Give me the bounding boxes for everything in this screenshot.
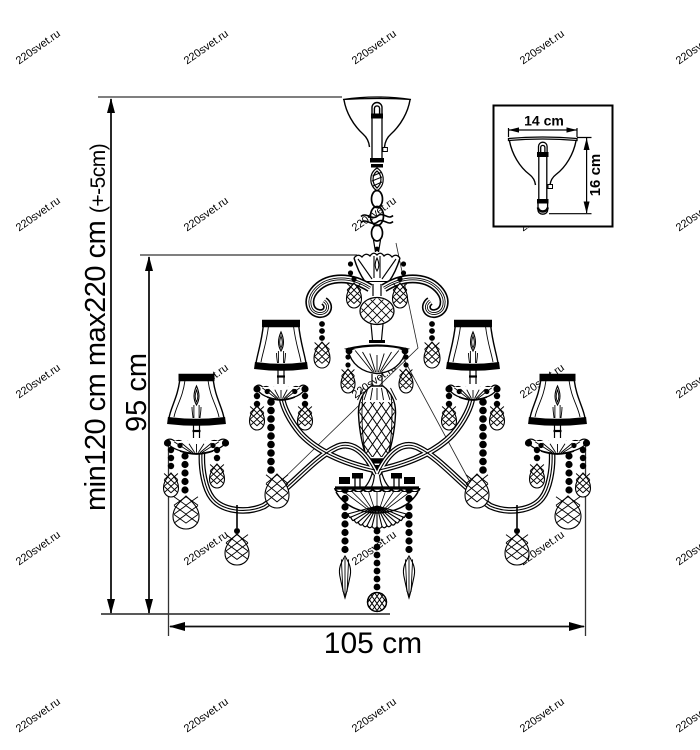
svg-text:220svet.ru: 220svet.ru — [350, 195, 399, 234]
svg-text:220svet.ru: 220svet.ru — [518, 696, 567, 735]
svg-text:220svet.ru: 220svet.ru — [182, 696, 231, 735]
svg-text:220svet.ru: 220svet.ru — [350, 28, 399, 67]
svg-text:220svet.ru: 220svet.ru — [14, 28, 63, 67]
svg-text:220svet.ru: 220svet.ru — [182, 195, 231, 234]
svg-text:220svet.ru: 220svet.ru — [182, 529, 231, 568]
svg-text:220svet.ru: 220svet.ru — [674, 696, 700, 735]
svg-text:min120 cm max220 cm (+-5cm): min120 cm max220 cm (+-5cm) — [80, 144, 112, 511]
svg-text:220svet.ru: 220svet.ru — [14, 362, 63, 401]
svg-text:14 cm: 14 cm — [524, 113, 564, 129]
svg-text:220svet.ru: 220svet.ru — [674, 362, 700, 401]
svg-text:220svet.ru: 220svet.ru — [350, 696, 399, 735]
svg-text:220svet.ru: 220svet.ru — [14, 696, 63, 735]
svg-text:220svet.ru: 220svet.ru — [674, 28, 700, 67]
svg-text:105 cm: 105 cm — [324, 627, 422, 660]
svg-text:220svet.ru: 220svet.ru — [14, 529, 63, 568]
svg-text:220svet.ru: 220svet.ru — [518, 28, 567, 67]
svg-text:220svet.ru: 220svet.ru — [674, 529, 700, 568]
svg-text:16 cm: 16 cm — [587, 154, 604, 197]
svg-text:220svet.ru: 220svet.ru — [14, 195, 63, 234]
svg-text:220svet.ru: 220svet.ru — [182, 28, 231, 67]
svg-text:220svet.ru: 220svet.ru — [674, 195, 700, 234]
svg-text:95 cm: 95 cm — [121, 353, 153, 432]
